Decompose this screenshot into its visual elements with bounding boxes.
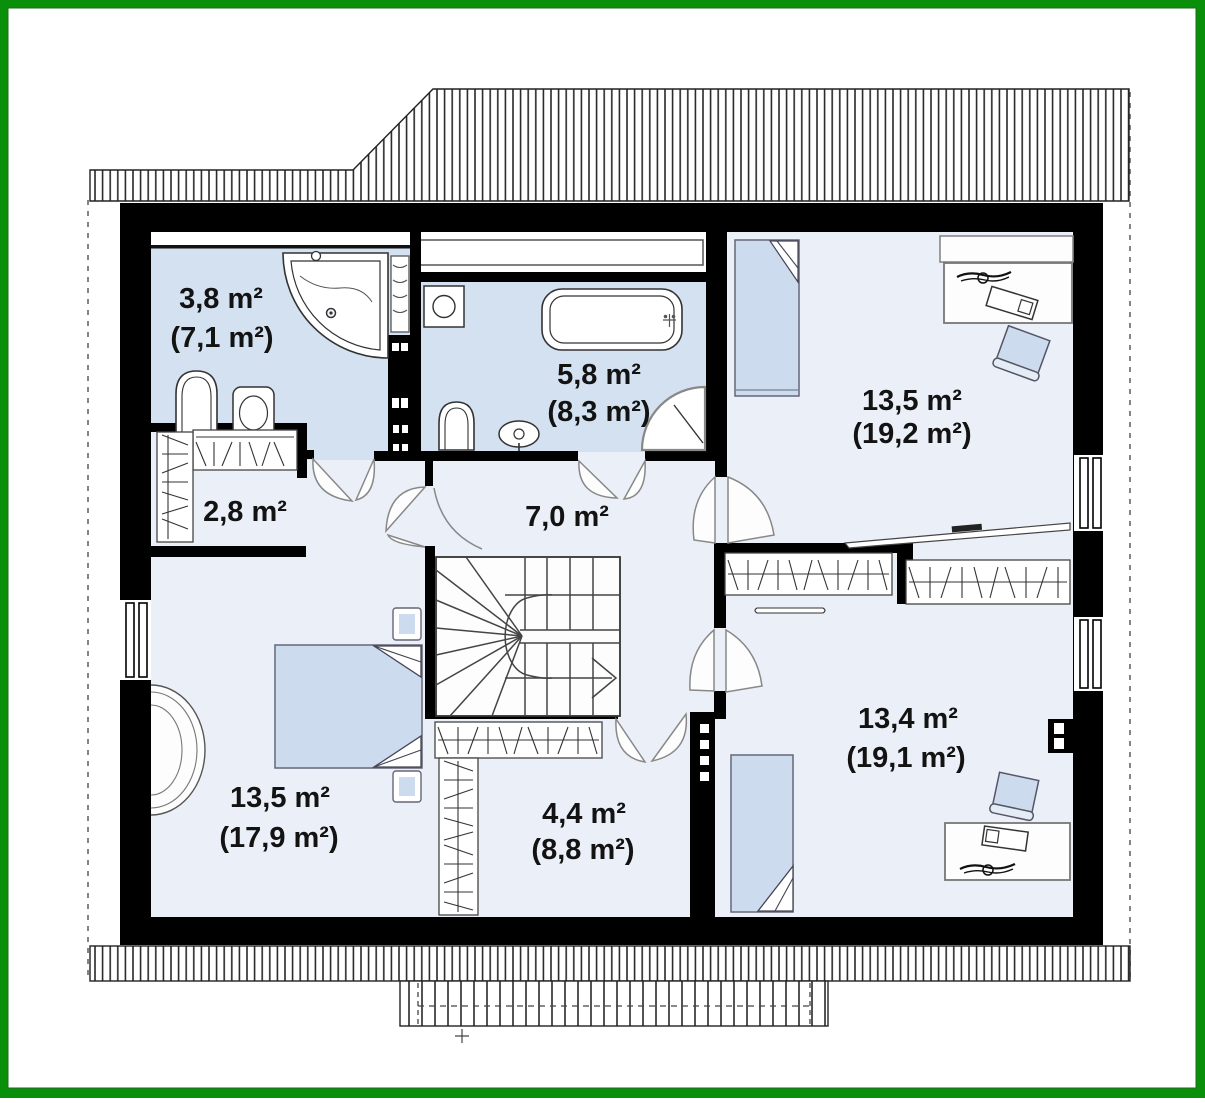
svg-text:(17,9 m²): (17,9 m²) <box>219 822 338 854</box>
svg-text:(19,1 m²): (19,1 m²) <box>846 742 965 774</box>
svg-text:(8,3 m²): (8,3 m²) <box>547 396 650 428</box>
svg-text:13,5 m²: 13,5 m² <box>230 782 330 814</box>
svg-text:3,8 m²: 3,8 m² <box>179 283 263 315</box>
svg-text:13,4 m²: 13,4 m² <box>858 703 958 735</box>
svg-text:7,0 m²: 7,0 m² <box>525 501 609 533</box>
svg-text:13,5 m²: 13,5 m² <box>862 385 962 417</box>
svg-text:(7,1 m²): (7,1 m²) <box>170 322 273 354</box>
svg-text:4,4 m²: 4,4 m² <box>542 798 626 830</box>
svg-text:2,8 m²: 2,8 m² <box>203 496 287 528</box>
svg-text:(19,2 m²): (19,2 m²) <box>852 418 971 450</box>
svg-text:5,8 m²: 5,8 m² <box>557 359 641 391</box>
svg-text:(8,8 m²): (8,8 m²) <box>531 834 634 866</box>
